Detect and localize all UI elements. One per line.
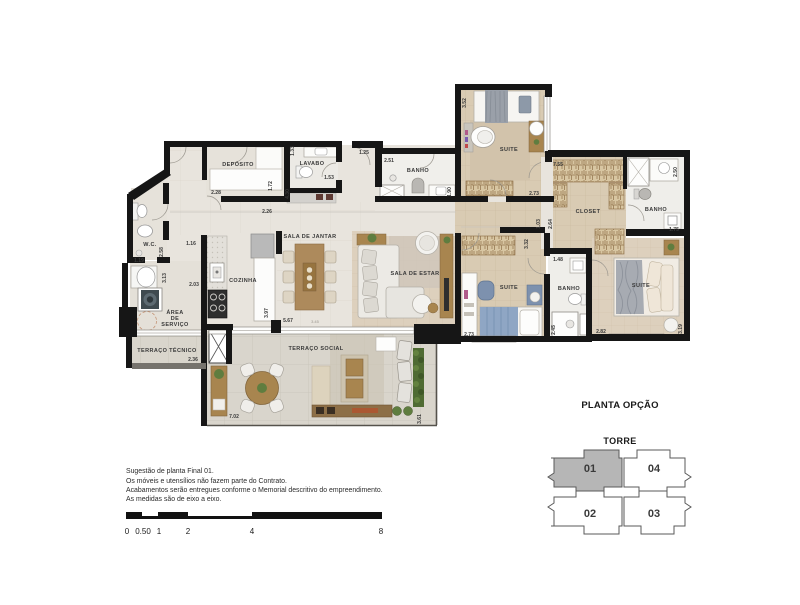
svg-text:Os móveis e utensílios não faz: Os móveis e utensílios não fazem parte d… bbox=[126, 478, 287, 485]
svg-text:Acabamentos serão entregues co: Acabamentos serão entregues conforme o M… bbox=[126, 487, 383, 494]
svg-text:2.73: 2.73 bbox=[464, 332, 474, 338]
svg-text:2.73: 2.73 bbox=[529, 191, 539, 197]
svg-text:02: 02 bbox=[584, 508, 596, 520]
svg-text:03: 03 bbox=[648, 508, 660, 520]
svg-text:2.28: 2.28 bbox=[211, 190, 221, 196]
svg-text:SUITE: SUITE bbox=[500, 147, 518, 153]
svg-text:2.58: 2.58 bbox=[159, 247, 165, 257]
svg-text:2.51: 2.51 bbox=[384, 158, 394, 164]
svg-text:LAVABO: LAVABO bbox=[300, 161, 325, 167]
svg-text:2.45: 2.45 bbox=[551, 325, 557, 335]
svg-text:7.02: 7.02 bbox=[229, 414, 239, 420]
svg-text:2.26: 2.26 bbox=[262, 209, 272, 215]
svg-text:TERRAÇO TÉCNICO: TERRAÇO TÉCNICO bbox=[137, 346, 197, 354]
svg-text:0: 0 bbox=[125, 527, 130, 536]
svg-text:3.52: 3.52 bbox=[462, 98, 468, 108]
svg-text:1.48: 1.48 bbox=[553, 257, 563, 263]
svg-text:1.33: 1.33 bbox=[290, 146, 296, 156]
svg-text:1.16: 1.16 bbox=[186, 241, 196, 247]
svg-text:BANHO: BANHO bbox=[407, 168, 429, 174]
svg-text:TORRE: TORRE bbox=[603, 436, 636, 446]
svg-text:SUITE: SUITE bbox=[500, 285, 518, 291]
svg-text:01: 01 bbox=[584, 463, 596, 475]
svg-text:4.30: 4.30 bbox=[285, 189, 291, 199]
svg-text:1: 1 bbox=[157, 527, 162, 536]
svg-text:3.13: 3.13 bbox=[162, 273, 168, 283]
svg-text:3.97: 3.97 bbox=[264, 308, 270, 318]
svg-text:COZINHA: COZINHA bbox=[229, 278, 257, 284]
svg-text:3.32: 3.32 bbox=[524, 239, 530, 249]
svg-text:Sugestão de planta Final 01.: Sugestão de planta Final 01. bbox=[126, 468, 214, 475]
svg-text:ÁREA: ÁREA bbox=[166, 309, 183, 316]
svg-text:1.75: 1.75 bbox=[669, 227, 679, 233]
svg-text:2.03: 2.03 bbox=[189, 282, 199, 288]
svg-text:3.19: 3.19 bbox=[678, 324, 684, 334]
svg-text:1.53: 1.53 bbox=[324, 175, 334, 181]
svg-text:1.25: 1.25 bbox=[359, 150, 369, 156]
svg-text:2.50: 2.50 bbox=[673, 167, 679, 177]
svg-text:1.72: 1.72 bbox=[268, 181, 274, 191]
svg-text:2: 2 bbox=[186, 527, 191, 536]
svg-text:SERVIÇO: SERVIÇO bbox=[161, 322, 189, 328]
svg-text:0.50: 0.50 bbox=[135, 527, 151, 536]
svg-text:W.C.: W.C. bbox=[143, 242, 157, 248]
svg-text:1.03: 1.03 bbox=[536, 219, 542, 229]
svg-text:TERRAÇO SOCIAL: TERRAÇO SOCIAL bbox=[288, 346, 343, 352]
svg-text:2.64: 2.64 bbox=[548, 219, 554, 229]
svg-text:2.82: 2.82 bbox=[596, 329, 606, 335]
svg-text:As medidas são de eixo a eixo.: As medidas são de eixo a eixo. bbox=[126, 496, 221, 503]
svg-text:SUITE: SUITE bbox=[632, 283, 650, 289]
svg-text:DEPÓSITO: DEPÓSITO bbox=[222, 160, 254, 168]
svg-text:7.55: 7.55 bbox=[553, 162, 563, 168]
svg-text:3.61: 3.61 bbox=[417, 414, 423, 424]
svg-text:SALA DE JANTAR: SALA DE JANTAR bbox=[284, 234, 337, 240]
svg-text:8: 8 bbox=[379, 527, 384, 536]
svg-text:04: 04 bbox=[648, 463, 661, 475]
svg-text:5.67: 5.67 bbox=[283, 318, 293, 324]
svg-text:4: 4 bbox=[250, 527, 255, 536]
svg-text:BANHO: BANHO bbox=[558, 286, 580, 292]
svg-text:1.19: 1.19 bbox=[134, 258, 144, 264]
svg-text:PLANTA OPÇÃO: PLANTA OPÇÃO bbox=[581, 400, 658, 411]
svg-text:2.36: 2.36 bbox=[188, 357, 198, 363]
svg-text:SALA DE ESTAR: SALA DE ESTAR bbox=[391, 271, 440, 277]
svg-text:CLOSET: CLOSET bbox=[576, 209, 601, 215]
svg-text:1.90: 1.90 bbox=[447, 187, 453, 197]
svg-text:3.45: 3.45 bbox=[311, 319, 320, 324]
svg-text:BANHO: BANHO bbox=[645, 207, 667, 213]
